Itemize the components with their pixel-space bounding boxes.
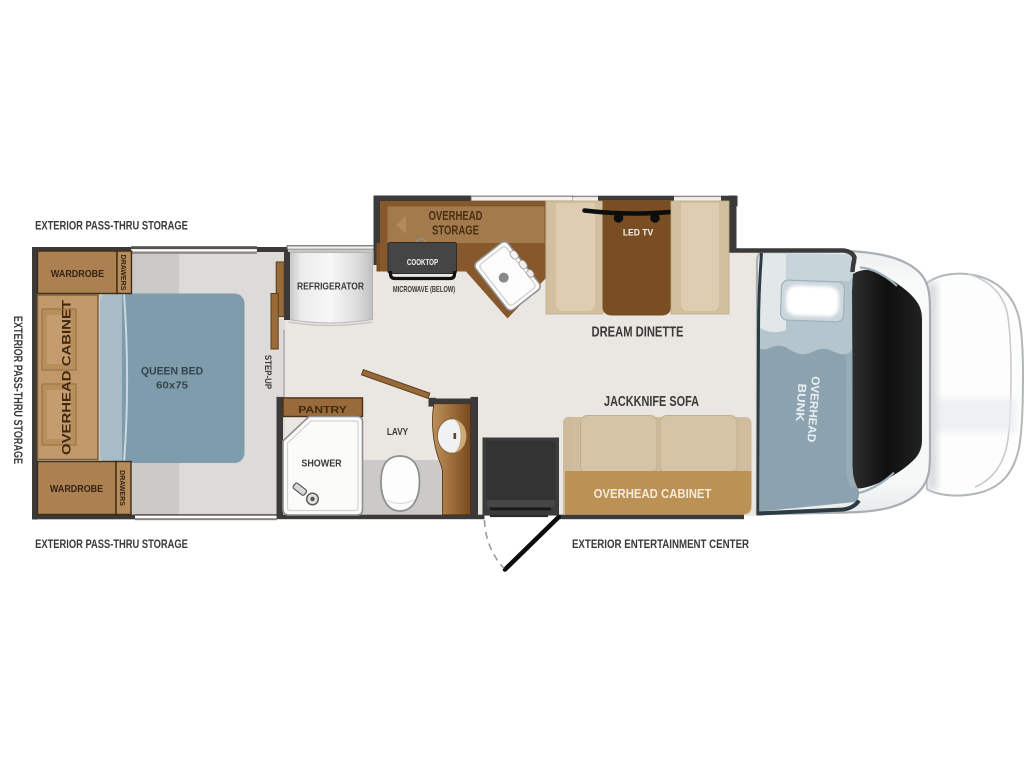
svg-text:EXTERIOR PASS-THRU STORAGE: EXTERIOR PASS-THRU STORAGE xyxy=(35,219,188,233)
svg-text:QUEEN BED: QUEEN BED xyxy=(141,365,203,377)
svg-text:OVERHEAD CABINET: OVERHEAD CABINET xyxy=(60,299,74,455)
svg-text:STEP-UP: STEP-UP xyxy=(263,355,273,390)
svg-text:EXTERIOR ENTERTAINMENT CENTER: EXTERIOR ENTERTAINMENT CENTER xyxy=(572,538,749,552)
svg-text:60x75: 60x75 xyxy=(156,379,188,390)
svg-text:EXTERIOR PASS-THRU STORAGE: EXTERIOR PASS-THRU STORAGE xyxy=(11,316,25,464)
svg-text:SHOWER: SHOWER xyxy=(301,457,342,468)
svg-text:EXTERIOR PASS-THRU STORAGE: EXTERIOR PASS-THRU STORAGE xyxy=(35,538,188,552)
svg-text:COOKTOP: COOKTOP xyxy=(407,257,438,267)
svg-text:LAVY: LAVY xyxy=(387,426,408,437)
svg-text:MICROWAVE (BELOW): MICROWAVE (BELOW) xyxy=(393,285,456,294)
svg-text:OVERHEAD CABINET: OVERHEAD CABINET xyxy=(594,488,712,502)
svg-text:DRAWERS: DRAWERS xyxy=(119,255,127,291)
svg-text:STORAGE: STORAGE xyxy=(432,224,479,238)
svg-text:REFRIGERATOR: REFRIGERATOR xyxy=(297,280,364,291)
svg-text:DRAWERS: DRAWERS xyxy=(118,470,126,506)
svg-text:LED TV: LED TV xyxy=(623,226,654,237)
svg-text:PANTRY: PANTRY xyxy=(298,404,347,415)
svg-text:DREAM DINETTE: DREAM DINETTE xyxy=(592,323,684,340)
svg-text:JACKKNIFE SOFA: JACKKNIFE SOFA xyxy=(604,392,699,409)
svg-text:WARDROBE: WARDROBE xyxy=(51,268,104,279)
svg-text:WARDROBE: WARDROBE xyxy=(50,483,103,494)
svg-text:OVERHEAD: OVERHEAD xyxy=(429,210,483,224)
